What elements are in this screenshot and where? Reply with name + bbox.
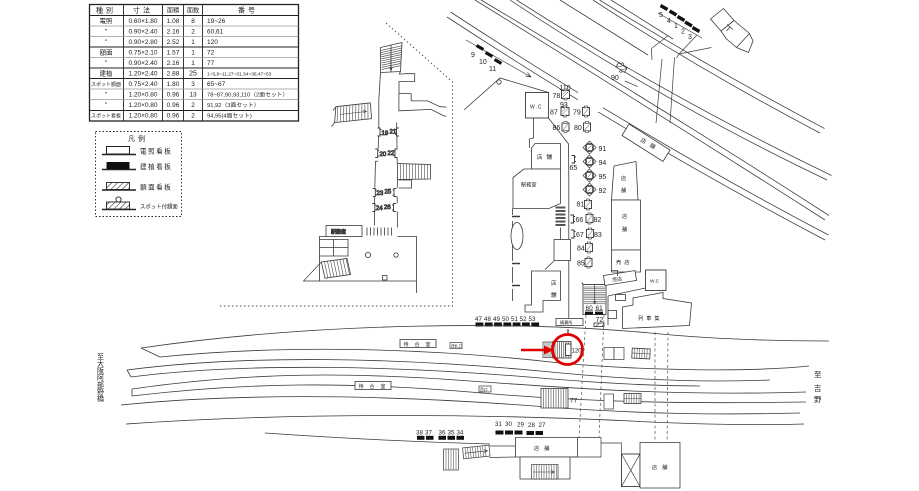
svg-text:80: 80 <box>574 125 582 132</box>
svg-text:65: 65 <box>570 165 578 172</box>
svg-text:1.20×0.80: 1.20×0.80 <box>128 113 157 120</box>
svg-text:スポット額面: スポット額面 <box>91 81 121 88</box>
svg-text:西口: 西口 <box>480 387 488 392</box>
svg-text:52: 52 <box>520 316 527 323</box>
svg-text:24: 24 <box>376 206 383 212</box>
svg-text:橋: 橋 <box>97 394 104 403</box>
svg-text:20: 20 <box>380 152 387 158</box>
svg-text:84: 84 <box>577 246 585 253</box>
svg-text:阪: 阪 <box>97 366 104 375</box>
svg-text:1: 1 <box>191 50 195 57</box>
svg-text:種別: 種別 <box>96 6 116 15</box>
svg-text:店舗: 店舗 <box>537 153 556 161</box>
svg-text:94: 94 <box>599 160 607 167</box>
svg-text:50: 50 <box>502 316 509 323</box>
svg-text:売店: 売店 <box>616 258 632 266</box>
svg-text:86: 86 <box>553 125 561 132</box>
svg-text:3: 3 <box>688 34 692 41</box>
svg-text:30: 30 <box>505 421 512 428</box>
svg-text:0.75×2.10: 0.75×2.10 <box>128 50 157 57</box>
svg-text:1~5,9~11,27~31,34~38,47~53: 1~5,9~11,27~31,34~38,47~53 <box>207 72 272 78</box>
svg-text:部: 部 <box>97 380 104 389</box>
svg-text:面積: 面積 <box>167 7 179 15</box>
svg-text:0.90×2.40: 0.90×2.40 <box>128 29 157 36</box>
svg-text:2.16: 2.16 <box>167 60 180 67</box>
svg-text:3: 3 <box>191 81 195 88</box>
svg-text:31: 31 <box>495 421 502 428</box>
svg-text:23: 23 <box>377 191 384 197</box>
svg-text:78: 78 <box>553 93 561 100</box>
svg-text:29: 29 <box>517 422 524 429</box>
svg-text:19~26: 19~26 <box>207 18 226 25</box>
svg-text:電照看板: 電照看板 <box>140 147 172 156</box>
svg-text:1.57: 1.57 <box>167 50 180 57</box>
svg-text:77: 77 <box>570 398 578 405</box>
svg-text:49: 49 <box>493 316 500 323</box>
svg-text:91: 91 <box>599 146 607 153</box>
svg-text:66: 66 <box>576 217 584 224</box>
svg-text:48: 48 <box>484 316 491 323</box>
svg-text:1: 1 <box>674 23 678 30</box>
svg-text:待合室: 待合室 <box>404 341 437 348</box>
svg-text:1.20×0.80: 1.20×0.80 <box>128 92 157 99</box>
svg-text:2.52: 2.52 <box>167 39 180 46</box>
svg-text:面数: 面数 <box>187 7 200 15</box>
svg-text:85: 85 <box>577 261 585 268</box>
svg-text:0.60×1.80: 0.60×1.80 <box>128 18 157 25</box>
svg-text:120: 120 <box>207 39 218 46</box>
svg-text:1.20×0.80: 1.20×0.80 <box>128 102 157 109</box>
svg-text:建植看板: 建植看板 <box>140 162 172 171</box>
svg-text:94,95(4面セット): 94,95(4面セット) <box>207 113 252 120</box>
svg-text:2: 2 <box>681 29 685 36</box>
svg-text:91,92（3面セット）: 91,92（3面セット） <box>207 102 260 109</box>
svg-text:凡例: 凡例 <box>128 134 148 143</box>
svg-text:87: 87 <box>550 110 558 117</box>
svg-text:72: 72 <box>207 50 215 57</box>
svg-text:阿: 阿 <box>97 373 104 382</box>
svg-text:至: 至 <box>814 370 822 379</box>
svg-text:0.75×2.40: 0.75×2.40 <box>128 81 157 88</box>
svg-text:額面看板: 額面看板 <box>140 183 172 192</box>
svg-text:60,61: 60,61 <box>207 29 224 36</box>
svg-text:51: 51 <box>511 316 518 323</box>
svg-text:0.96: 0.96 <box>167 113 180 120</box>
svg-text:0.96: 0.96 <box>167 102 180 109</box>
svg-text:額面: 額面 <box>100 48 114 57</box>
svg-text:スポット看板: スポット看板 <box>91 113 121 120</box>
svg-text:大: 大 <box>97 359 104 368</box>
svg-text:舗: 舗 <box>622 225 627 233</box>
svg-text:37: 37 <box>425 430 432 437</box>
svg-text:38: 38 <box>416 430 423 437</box>
svg-text:83: 83 <box>594 232 602 239</box>
svg-text:寸法: 寸法 <box>133 6 153 15</box>
svg-text:65~67: 65~67 <box>207 81 226 88</box>
svg-text:駅務室: 駅務室 <box>521 181 537 189</box>
svg-text:0.90×2.40: 0.90×2.40 <box>128 60 157 67</box>
svg-text:5: 5 <box>659 12 663 19</box>
svg-text:店舗: 店舗 <box>534 444 554 452</box>
svg-text:野: 野 <box>814 395 822 404</box>
svg-text:8: 8 <box>191 18 195 25</box>
svg-text:スポット付額面: スポット付額面 <box>140 203 178 211</box>
svg-text:0.96: 0.96 <box>167 92 180 99</box>
svg-text:2: 2 <box>191 29 195 36</box>
svg-text:2: 2 <box>191 113 195 120</box>
svg-text:95: 95 <box>599 174 607 181</box>
svg-text:列車集: 列車集 <box>638 314 663 322</box>
svg-text:至: 至 <box>97 353 104 361</box>
svg-text:1: 1 <box>191 39 195 46</box>
svg-text:25: 25 <box>385 190 392 196</box>
svg-text:4: 4 <box>667 18 671 25</box>
svg-text:78~87,90,93,110（2面セット）: 78~87,90,93,110（2面セット） <box>207 92 288 99</box>
svg-text:25: 25 <box>189 71 197 78</box>
svg-text:77: 77 <box>207 60 215 67</box>
svg-text:47: 47 <box>475 316 482 323</box>
svg-text:店: 店 <box>622 212 627 220</box>
svg-text:舗: 舗 <box>551 291 557 299</box>
svg-text:92: 92 <box>599 188 607 195</box>
svg-text:駅務室: 駅務室 <box>331 229 346 236</box>
svg-text:9: 9 <box>471 52 475 59</box>
svg-text:2.16: 2.16 <box>167 29 180 36</box>
svg-text:W.C: W.C <box>650 279 660 285</box>
svg-text:0.90×2.80: 0.90×2.80 <box>128 39 157 46</box>
svg-text:2.88: 2.88 <box>167 71 180 78</box>
svg-text:34: 34 <box>457 430 464 437</box>
svg-text:吉: 吉 <box>814 384 822 393</box>
svg-text:27: 27 <box>539 422 546 429</box>
svg-text:舗: 舗 <box>621 186 626 194</box>
svg-text:1.80: 1.80 <box>167 81 180 88</box>
svg-text:1: 1 <box>191 60 195 67</box>
svg-text:1.20×2.40: 1.20×2.40 <box>128 71 157 78</box>
svg-text:1.08: 1.08 <box>167 18 180 25</box>
svg-text:11: 11 <box>489 66 496 73</box>
svg-text:改札口: 改札口 <box>451 343 463 348</box>
svg-text:W.C: W.C <box>530 105 542 111</box>
svg-text:店舗: 店舗 <box>652 463 672 471</box>
svg-text:10: 10 <box>479 59 487 66</box>
svg-text:19: 19 <box>382 131 389 137</box>
svg-text:建植: 建植 <box>100 69 114 78</box>
svg-text:82: 82 <box>594 217 602 224</box>
svg-text:2: 2 <box>191 102 195 109</box>
svg-text:53: 53 <box>529 316 536 323</box>
svg-text:79: 79 <box>573 110 581 117</box>
svg-text:店: 店 <box>621 174 626 182</box>
svg-text:野: 野 <box>97 388 104 396</box>
svg-text:81: 81 <box>577 202 585 209</box>
svg-text:店: 店 <box>551 279 557 287</box>
svg-text:26: 26 <box>384 205 391 211</box>
svg-text:電照: 電照 <box>100 17 114 25</box>
svg-text:13: 13 <box>189 92 197 99</box>
svg-text:待合室: 待合室 <box>359 383 392 390</box>
svg-text:90: 90 <box>611 75 619 82</box>
svg-text:67: 67 <box>576 232 584 239</box>
svg-text:35: 35 <box>448 430 455 437</box>
svg-text:36: 36 <box>439 430 446 437</box>
svg-text:番号: 番号 <box>238 7 258 15</box>
svg-text:28: 28 <box>528 422 535 429</box>
svg-text:精算所: 精算所 <box>560 319 573 326</box>
